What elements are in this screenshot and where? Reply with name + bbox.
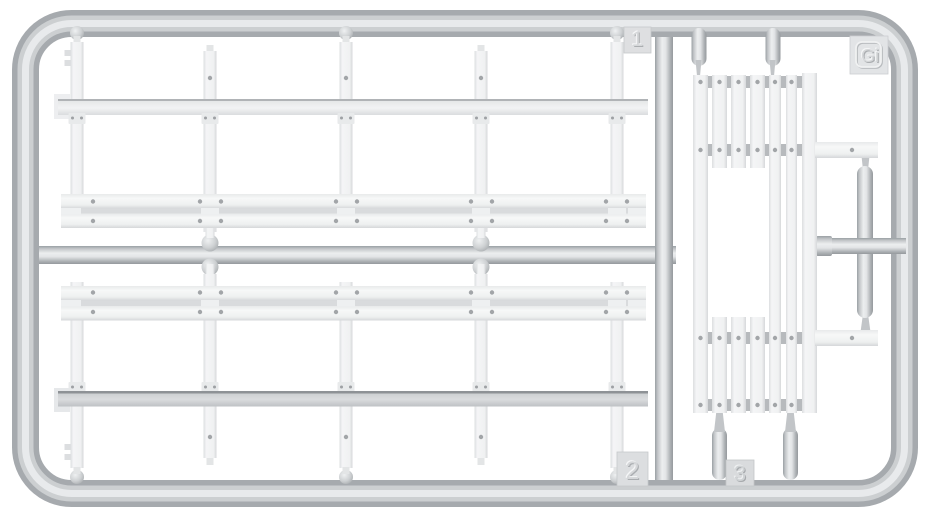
slat-panel <box>693 75 802 413</box>
stake-assembly-bottom <box>54 264 648 474</box>
bottom-rail <box>58 394 648 407</box>
post-hook <box>65 444 71 450</box>
stake-post <box>74 36 81 43</box>
sprue-letter-label: Gi <box>861 46 879 66</box>
stake-post <box>343 36 350 43</box>
gate-neck <box>696 60 702 76</box>
cross-runner-horizontal <box>828 238 906 254</box>
post-rivets <box>208 435 483 439</box>
main-runner-middle <box>24 246 676 264</box>
post-hook <box>65 454 71 460</box>
top-rail <box>58 101 648 115</box>
stake-assembly-top <box>54 36 648 238</box>
teardrop-gate <box>783 428 798 480</box>
gate-neck <box>714 410 725 432</box>
bottom-rail-edge <box>58 391 648 394</box>
post-stub <box>477 228 486 238</box>
stake-post <box>207 458 214 465</box>
post-rivets <box>208 76 483 80</box>
sprue-photo: 1 1 1 2 2 2 3 3 3 Gi Gi Gi <box>0 0 925 510</box>
sprue-tab-3: 3 3 3 <box>726 460 754 487</box>
slat <box>731 317 746 413</box>
stake-post <box>614 36 621 43</box>
sprue-tab-2-label: 2 <box>626 457 640 485</box>
stake-post <box>478 458 485 465</box>
teardrop-gate <box>712 428 727 480</box>
plank-lower <box>61 306 646 321</box>
post-hook <box>65 50 71 56</box>
stake-post <box>343 467 350 474</box>
sprue-letter-tab: Gi Gi Gi <box>850 36 888 74</box>
slat <box>693 75 708 413</box>
slat <box>731 75 746 168</box>
gate-neck <box>785 410 796 432</box>
stake-post <box>478 45 485 52</box>
stake-post <box>207 45 214 52</box>
post-stub <box>206 228 215 238</box>
sprue-tab-1: 1 1 1 <box>624 27 651 53</box>
sprue-tab-1-label: 1 <box>632 28 644 51</box>
plank-upper <box>61 286 646 301</box>
bracket-arm-lower <box>815 330 878 346</box>
main-runner-vertical <box>655 24 673 494</box>
bracket-strip <box>802 73 817 413</box>
post-hook <box>65 60 71 66</box>
sprue-illustration: 1 1 1 2 2 2 3 3 3 Gi Gi Gi <box>0 0 925 510</box>
plank-lower <box>61 214 646 229</box>
cross-runner-gate-block <box>816 236 832 256</box>
slat <box>712 75 727 168</box>
sprue-tab-2: 2 2 2 <box>617 452 648 486</box>
slat <box>712 317 727 413</box>
slat <box>769 75 781 413</box>
slat <box>750 317 765 413</box>
bracket-arm-upper <box>815 142 878 158</box>
stake-post <box>74 467 81 474</box>
gate-neck <box>770 60 776 76</box>
plank-upper <box>61 194 646 209</box>
slat <box>786 75 797 413</box>
slat <box>750 75 765 168</box>
sprue-tab-3-label: 3 <box>734 461 746 486</box>
